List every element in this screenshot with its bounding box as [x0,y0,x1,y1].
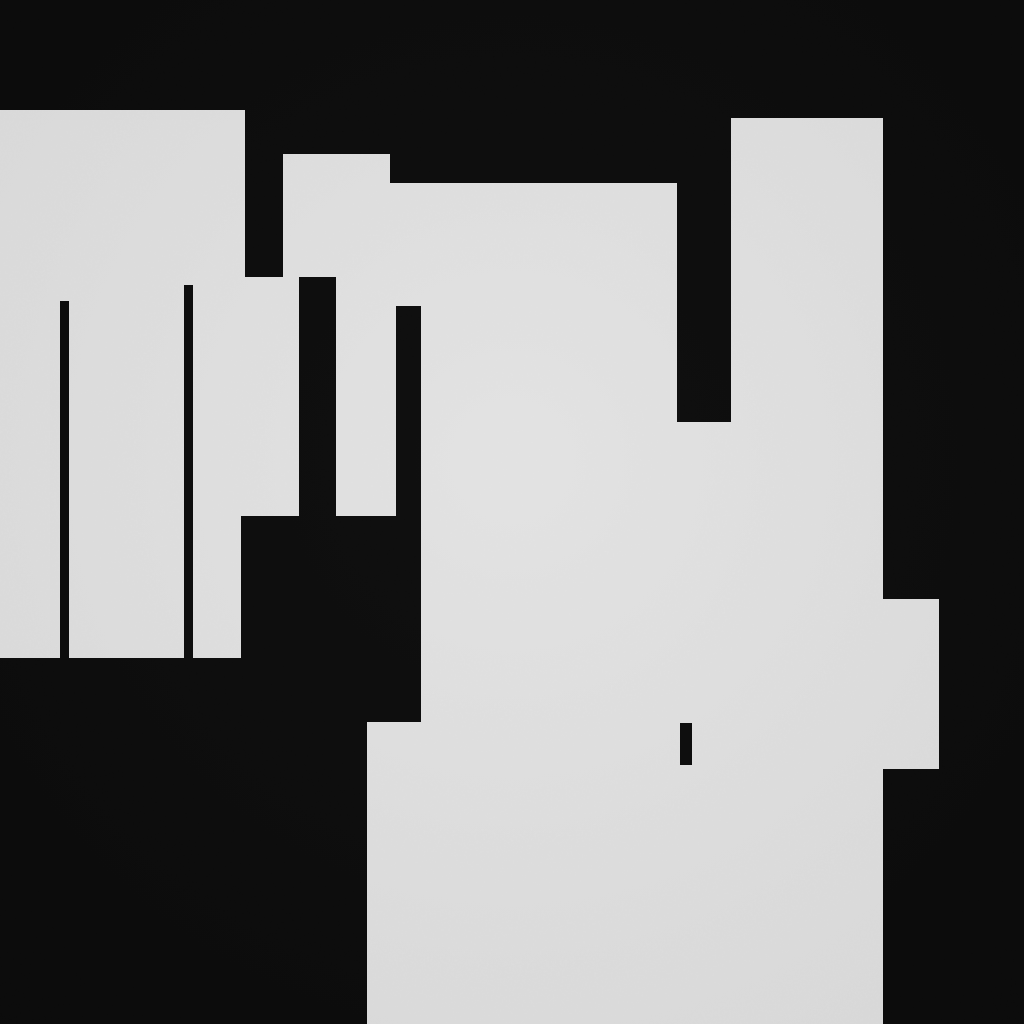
thin-vertical-line-middle [184,285,193,658]
wide-vertical-column [299,277,336,516]
small-vertical-tick [680,723,692,765]
bottom-center-region [421,516,883,1024]
middle-block [283,154,390,516]
left-connector [245,277,283,516]
abstract-composition [0,0,1024,1024]
right-bump [883,599,939,769]
paper-texture-overlay [0,0,1024,1024]
thin-vertical-line-left [60,301,69,658]
bottom-left-step [367,722,421,1024]
center-top-region [390,183,677,516]
vignette-overlay [0,0,1024,1024]
right-tall-region [731,118,883,516]
left-block-upper [0,110,245,516]
left-block-lower [0,516,241,658]
notch-underfill [677,422,731,516]
narrow-vertical-column [396,306,421,516]
